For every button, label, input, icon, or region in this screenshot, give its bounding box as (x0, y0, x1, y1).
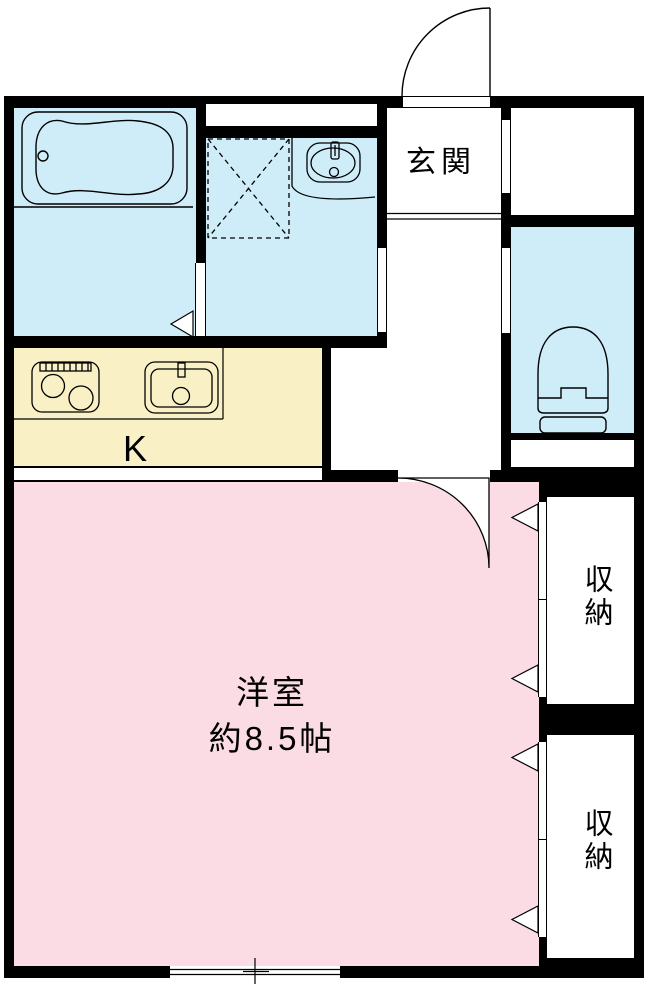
room-washroom (206, 138, 377, 336)
kitchen-room-label: K (105, 428, 165, 469)
entrance-door-opening (403, 96, 490, 108)
pipe-space-alcove (511, 440, 634, 467)
storage-upper-label: 収納 (575, 564, 617, 630)
room-kitchen (14, 348, 322, 466)
western-room-size-label: 約8.5帖 (142, 720, 402, 758)
washroom-door (377, 248, 387, 332)
entrance-closet-opening (501, 120, 511, 193)
room-entrance-closet (511, 108, 634, 215)
storage-lower-folding-door (538, 742, 547, 937)
genkan-room-label: 玄関 (383, 146, 499, 181)
entrance-door-icon (402, 8, 490, 96)
kitchen-room-threshold (14, 466, 322, 482)
storage-lower-label: 収納 (575, 808, 617, 874)
room-door-opening (398, 470, 490, 482)
toilet-door (501, 248, 511, 333)
exterior-niche (206, 104, 377, 126)
hall-lower (331, 348, 387, 470)
floor-plan: 玄関 K 洋室 約8.5帖 収納 収納 (0, 0, 648, 984)
bathroom-door (195, 263, 206, 336)
room-bathroom (14, 108, 196, 336)
storage-upper-folding-door (538, 502, 547, 697)
room-toilet (511, 227, 634, 433)
western-room-label: 洋室 (162, 674, 382, 712)
